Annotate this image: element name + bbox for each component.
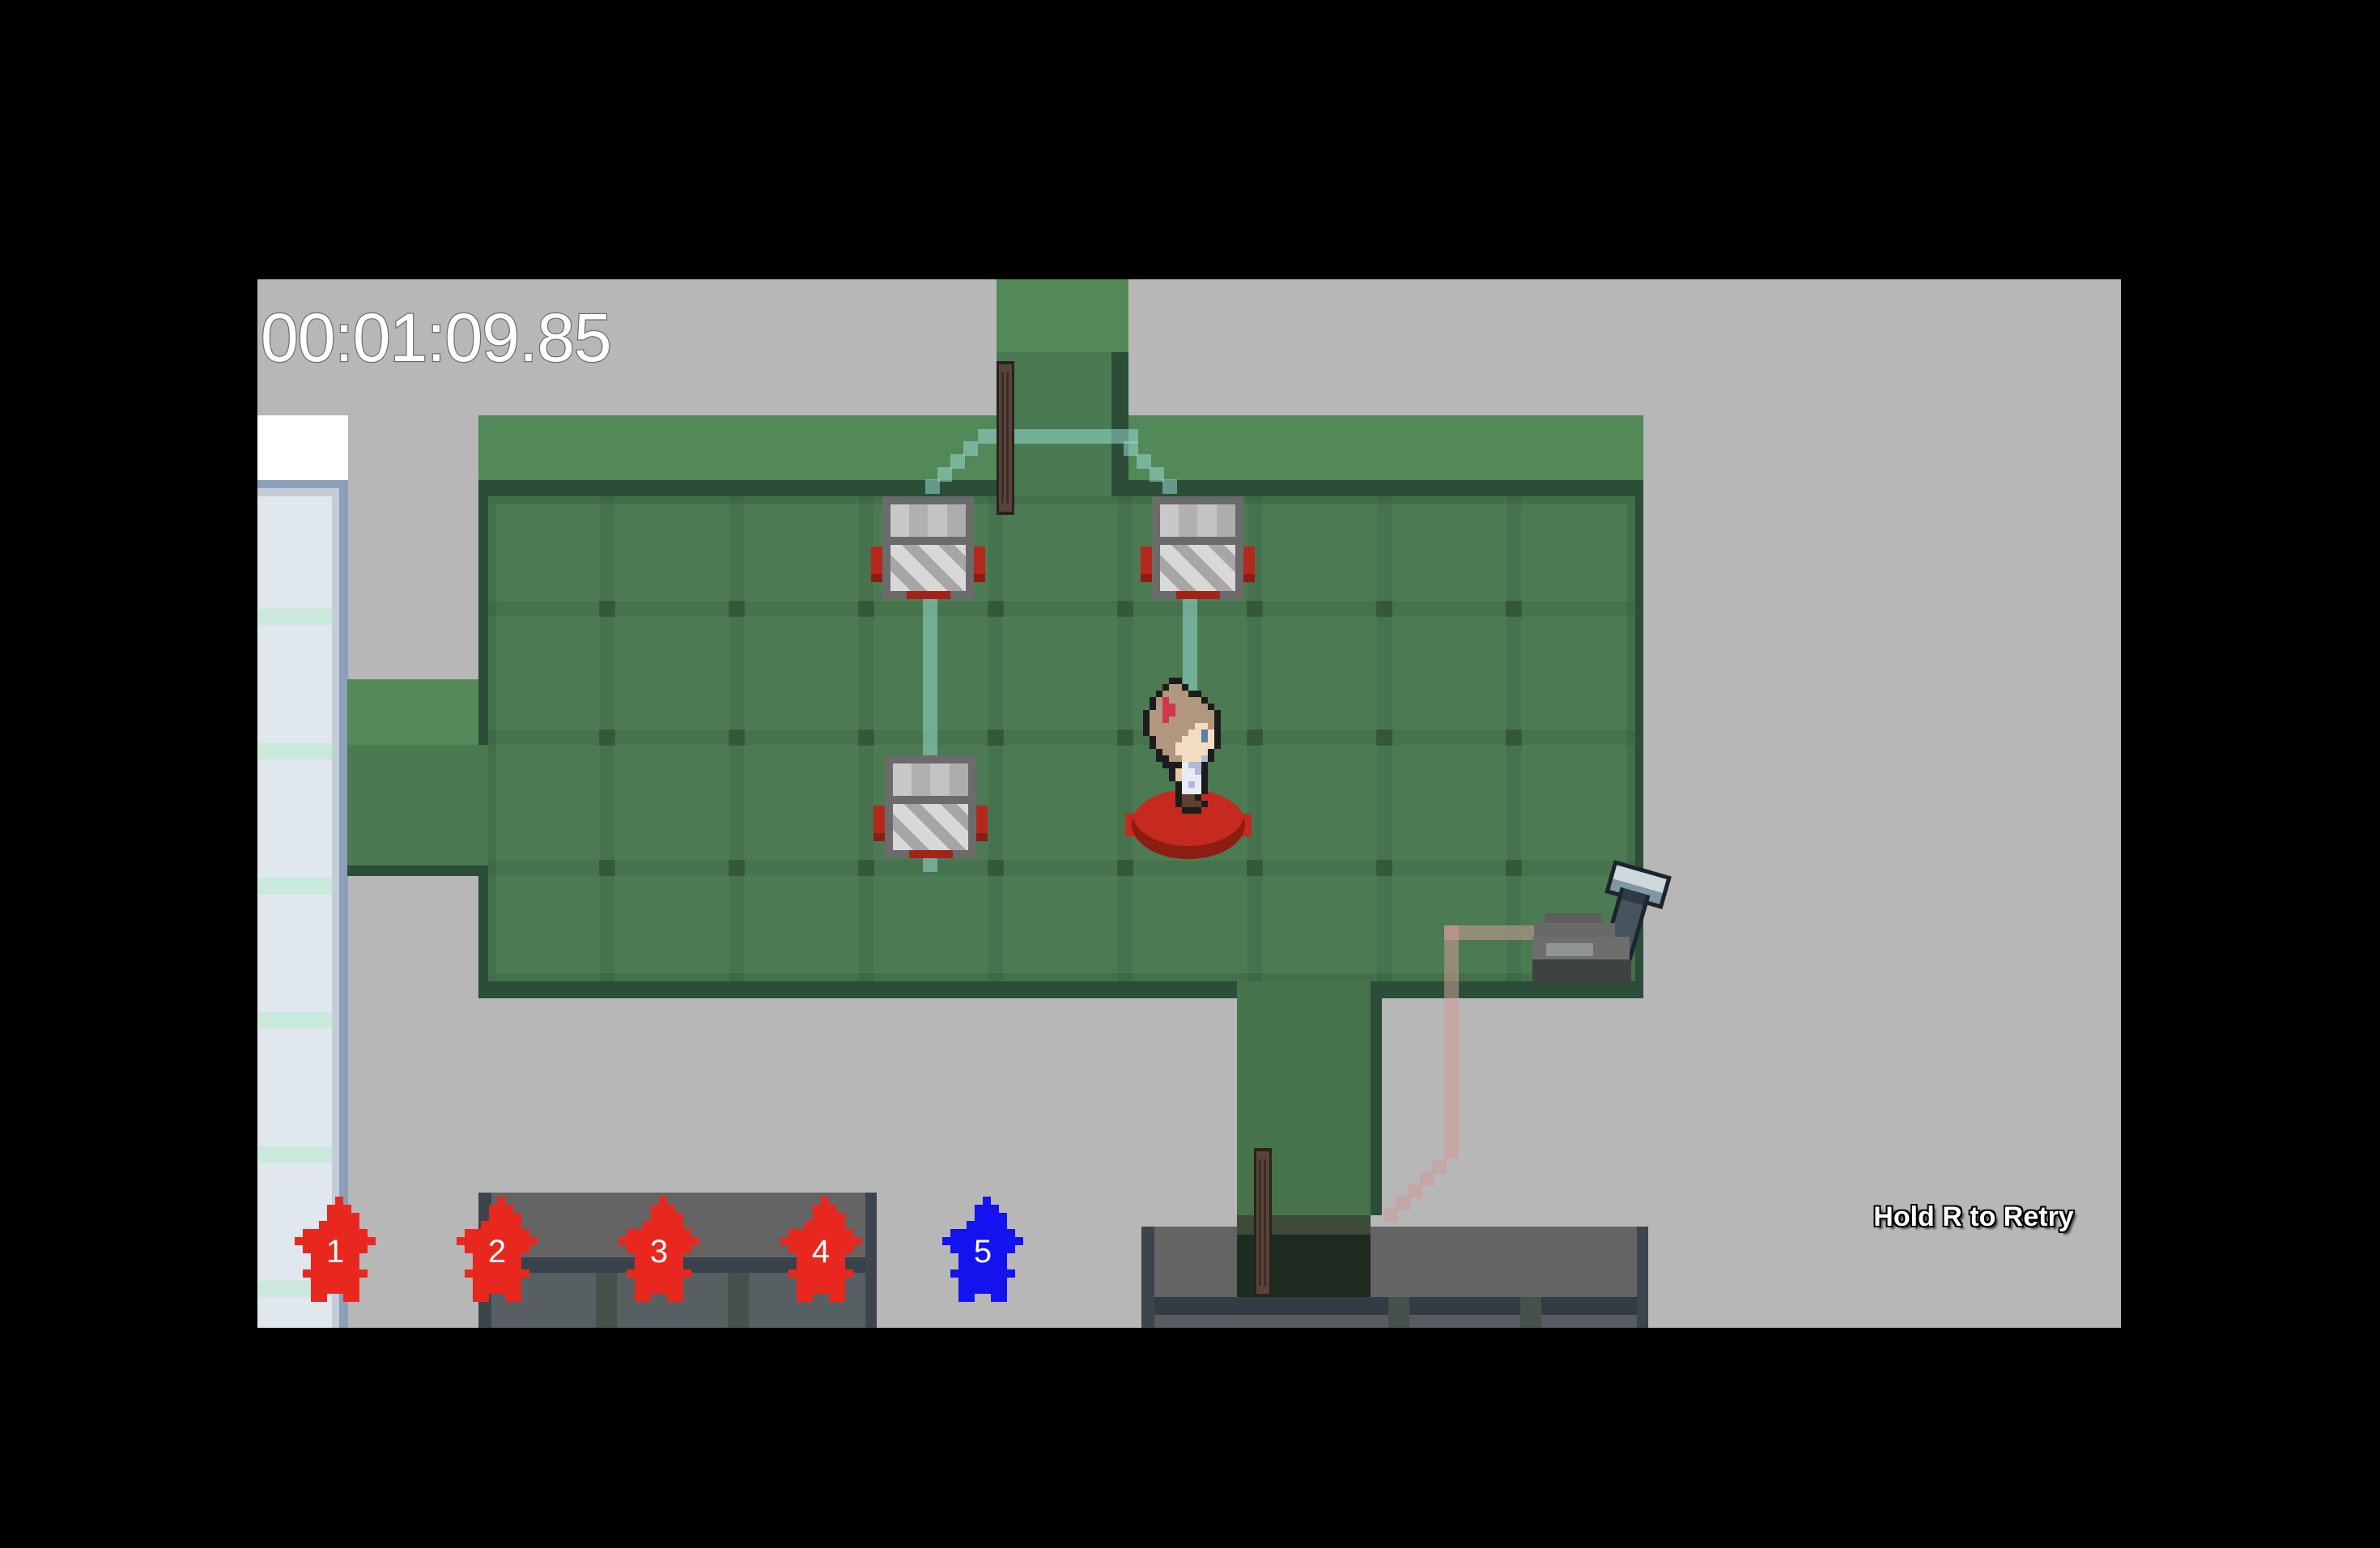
grid-line — [488, 730, 1635, 745]
south-structure-right — [1141, 1227, 1648, 1328]
bottom-corridor-border-right — [1371, 981, 1382, 1215]
wall-stripe — [257, 743, 332, 759]
grid-dot — [988, 729, 1004, 746]
grid-dot — [1376, 729, 1392, 746]
room-floor — [488, 496, 1635, 981]
room-border-bottom — [478, 981, 1643, 998]
marker-number: 2 — [457, 1235, 538, 1268]
grid-dot — [858, 860, 874, 876]
grid-dot — [599, 860, 615, 876]
grid-line — [488, 602, 1635, 616]
grid-dot — [729, 729, 745, 746]
grid-dot — [988, 860, 1004, 876]
timer-display: 00:01:09.85 — [261, 300, 611, 375]
grid-dot — [1506, 729, 1522, 746]
marker-number: 4 — [780, 1235, 861, 1268]
retry-hint: Hold R to Retry — [1868, 1201, 2079, 1233]
grid-dot — [1506, 601, 1522, 617]
grid-dot — [988, 601, 1004, 617]
machine-top-right — [1152, 496, 1243, 599]
top-corridor-wall-band — [997, 279, 1128, 352]
marker-arrow-5: 5 — [942, 1197, 1023, 1302]
grid-dot — [1247, 729, 1263, 746]
teal-trail-vertical-right — [1183, 599, 1197, 797]
bottom-corridor-door — [1254, 1148, 1272, 1297]
grid-dot — [729, 601, 745, 617]
grid-dot — [599, 601, 615, 617]
marker-arrow-4: 4 — [780, 1197, 861, 1302]
grid-dot — [858, 601, 874, 617]
top-corridor-border-right — [1111, 352, 1128, 496]
machine-bottom-left — [885, 755, 976, 858]
marker-number: 3 — [618, 1235, 699, 1268]
grid-dot — [1117, 729, 1133, 746]
wall-stripe — [257, 1012, 332, 1028]
marker-arrow-1: 1 — [295, 1197, 376, 1302]
grid-dot — [1247, 601, 1263, 617]
wall-stripe — [257, 1146, 332, 1163]
grid-dot — [729, 860, 745, 876]
alcove-wall-top — [347, 679, 478, 745]
marker-arrow-3: 3 — [618, 1197, 699, 1302]
pale-room-wall-top — [257, 415, 348, 480]
wall-stripe — [257, 878, 332, 894]
grid-dot — [599, 729, 615, 746]
grid-dot — [1506, 860, 1522, 876]
red-floor-button — [1132, 789, 1245, 859]
wall-stripe — [257, 609, 332, 625]
grid-dot — [1117, 601, 1133, 617]
game-viewport[interactable]: 1 2 3 4 5 00:01:09.85 Hold R to Retry — [257, 279, 2121, 1328]
grid-dot — [1376, 860, 1392, 876]
grid-dot — [1247, 860, 1263, 876]
grid-dot — [858, 729, 874, 746]
pink-trail-vertical — [1444, 925, 1459, 1159]
marker-arrow-2: 2 — [457, 1197, 538, 1302]
marker-number: 5 — [942, 1235, 1023, 1268]
top-corridor-door — [997, 361, 1014, 515]
machine-top-left — [882, 496, 974, 599]
marker-number: 1 — [295, 1235, 376, 1268]
alcove-border-bottom — [347, 865, 488, 876]
teal-trail-vertical-left — [923, 599, 937, 755]
grid-dot — [1117, 860, 1133, 876]
alcove-floor — [347, 745, 488, 865]
grid-dot — [1376, 601, 1392, 617]
grid-line — [488, 861, 1635, 875]
